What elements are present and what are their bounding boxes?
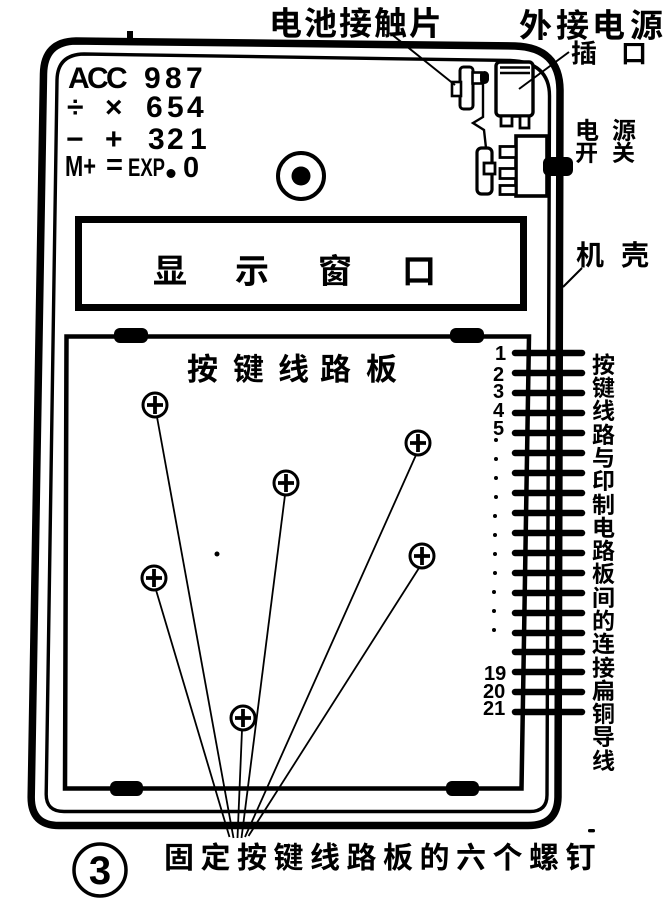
svg-text:0: 0 [183,152,199,184]
svg-text:3: 3 [89,849,111,893]
svg-text:=: = [106,149,123,181]
svg-text:1: 1 [495,343,506,365]
svg-text:21: 21 [483,698,505,720]
svg-text:5: 5 [493,418,504,440]
svg-text:EXP: EXP [128,154,165,182]
svg-text:M+: M+ [65,151,96,183]
